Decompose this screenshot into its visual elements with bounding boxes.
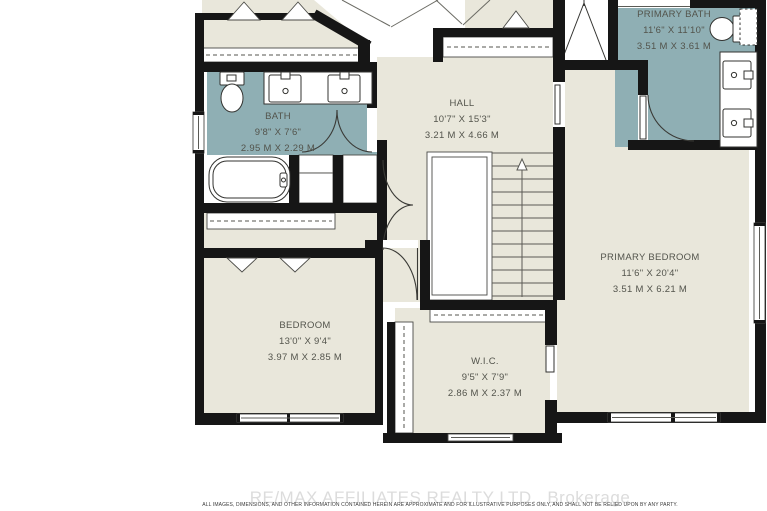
room-dimensions-metric: 3.97 M X 2.85 M — [225, 350, 385, 366]
room-dimensions-imperial: 11'6" X 11'10" — [594, 23, 754, 39]
bathtub-icon — [209, 157, 290, 202]
room-dimensions-imperial: 13'0" X 9'4" — [225, 334, 385, 350]
room-name: HALL — [382, 96, 542, 112]
double-vanity-icon — [264, 72, 372, 104]
room-name: BATH — [198, 109, 358, 125]
room-name: W.I.C. — [405, 354, 565, 370]
primary-bedroom-doorway — [553, 82, 565, 127]
primary-double-vanity-icon — [720, 52, 757, 147]
disclaimer-text: ALL IMAGES, DIMENSIONS, AND OTHER INFORM… — [130, 502, 750, 508]
room-label-primary-bath: PRIMARY BATH 11'6" X 11'10" 3.51 M X 3.6… — [594, 7, 754, 55]
room-label-hall: HALL 10'7" X 15'3" 3.21 M X 4.66 M — [382, 96, 542, 144]
toilet-icon — [220, 72, 244, 112]
primary-bedroom-east-window — [754, 223, 765, 323]
room-dimensions-metric: 3.51 M X 3.61 M — [594, 39, 754, 55]
room-name: PRIMARY BATH — [594, 7, 754, 23]
wic-window — [448, 434, 513, 441]
room-dimensions-imperial: 10'7" X 15'3" — [382, 112, 542, 128]
linen-closet-lower — [299, 173, 333, 203]
room-label-bath: BATH 9'8" X 7'6" 2.95 M X 2.29 M — [198, 109, 358, 157]
bedroom-window — [237, 414, 343, 422]
primary-bedroom-south-window — [608, 413, 720, 422]
room-dimensions-imperial: 11'6" X 20'4" — [570, 266, 730, 282]
linen-closet-upper — [299, 155, 333, 173]
bedroom-floor — [202, 213, 377, 413]
room-dimensions-imperial: 9'8" X 7'6" — [198, 125, 358, 141]
room-label-primary-bedroom: PRIMARY BEDROOM 11'6" X 20'4" 3.51 M X 6… — [570, 250, 730, 298]
room-dimensions-metric: 2.95 M X 2.29 M — [198, 141, 358, 157]
hall-linen-closet — [343, 155, 377, 203]
room-dimensions-metric: 3.21 M X 4.66 M — [382, 128, 542, 144]
room-label-bedroom: BEDROOM 13'0" X 9'4" 3.97 M X 2.85 M — [225, 318, 385, 366]
top-room-closet — [202, 48, 362, 62]
room-label-wic: W.I.C. 9'5" X 7'9" 2.86 M X 2.37 M — [405, 354, 565, 402]
room-dimensions-metric: 3.51 M X 6.21 M — [570, 282, 730, 298]
floorplan-page: BATH 9'8" X 7'6" 2.95 M X 2.29 M HALL 10… — [0, 0, 767, 511]
room-name: PRIMARY BEDROOM — [570, 250, 730, 266]
room-dimensions-metric: 2.86 M X 2.37 M — [405, 386, 565, 402]
room-name: BEDROOM — [225, 318, 385, 334]
stairwell-opening — [427, 152, 492, 300]
room-dimensions-imperial: 9'5" X 7'9" — [405, 370, 565, 386]
